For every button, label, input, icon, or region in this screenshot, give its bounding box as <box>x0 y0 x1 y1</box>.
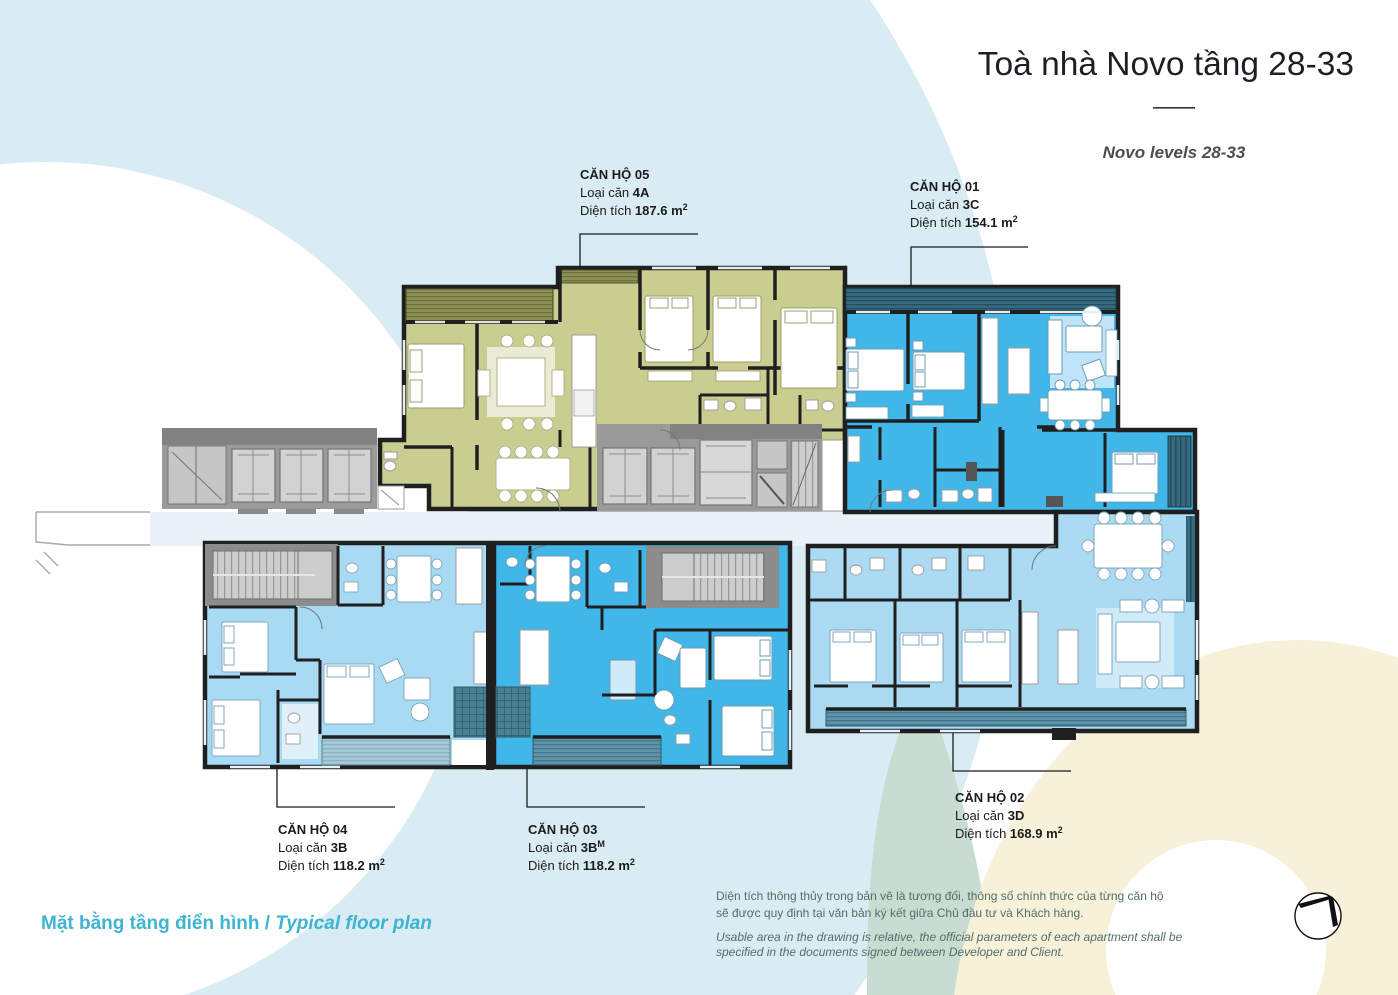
svg-text:Diện tích 118.2 m2: Diện tích 118.2 m2 <box>528 857 635 873</box>
svg-text:Loại căn 3D: Loại căn 3D <box>955 808 1024 823</box>
svg-text:specified in the documents sig: specified in the documents signed betwee… <box>716 945 1064 959</box>
svg-text:Loại căn 3BM: Loại căn 3BM <box>528 839 605 855</box>
svg-text:Loại căn 3B: Loại căn 3B <box>278 840 347 855</box>
svg-text:Mặt bằng tầng điển hình / Typi: Mặt bằng tầng điển hình / Typical floor … <box>41 912 432 934</box>
svg-text:Diện tích 187.6 m2: Diện tích 187.6 m2 <box>580 202 688 218</box>
svg-text:Loại căn 3C: Loại căn 3C <box>910 197 980 212</box>
svg-text:Diện tích 154.1 m2: Diện tích 154.1 m2 <box>910 214 1018 230</box>
svg-text:Diện tích 118.2 m2: Diện tích 118.2 m2 <box>278 857 385 873</box>
svg-text:CĂN HỘ 03: CĂN HỘ 03 <box>528 822 597 837</box>
svg-text:Diện tích 168.9 m2: Diện tích 168.9 m2 <box>955 825 1063 841</box>
svg-text:CĂN HỘ 05: CĂN HỘ 05 <box>580 167 649 182</box>
svg-text:CĂN HỘ 04: CĂN HỘ 04 <box>278 822 348 837</box>
svg-text:Loại căn 4A: Loại căn 4A <box>580 185 650 200</box>
svg-text:Diện tích thông thủy trong bản: Diện tích thông thủy trong bản vẽ là tươ… <box>716 889 1164 903</box>
svg-text:CĂN HỘ 01: CĂN HỘ 01 <box>910 179 979 194</box>
svg-text:sẽ được quy định tại văn bản k: sẽ được quy định tại văn bản ký kết giữa… <box>716 906 1084 920</box>
svg-text:CĂN HỘ 02: CĂN HỘ 02 <box>955 790 1024 805</box>
svg-text:Toà nhà Novo tầng 28-33: Toà nhà Novo tầng 28-33 <box>978 46 1354 83</box>
svg-text:Novo levels 28-33: Novo levels 28-33 <box>1103 143 1246 162</box>
svg-text:Usable area in the drawing is: Usable area in the drawing is relative, … <box>716 930 1183 944</box>
